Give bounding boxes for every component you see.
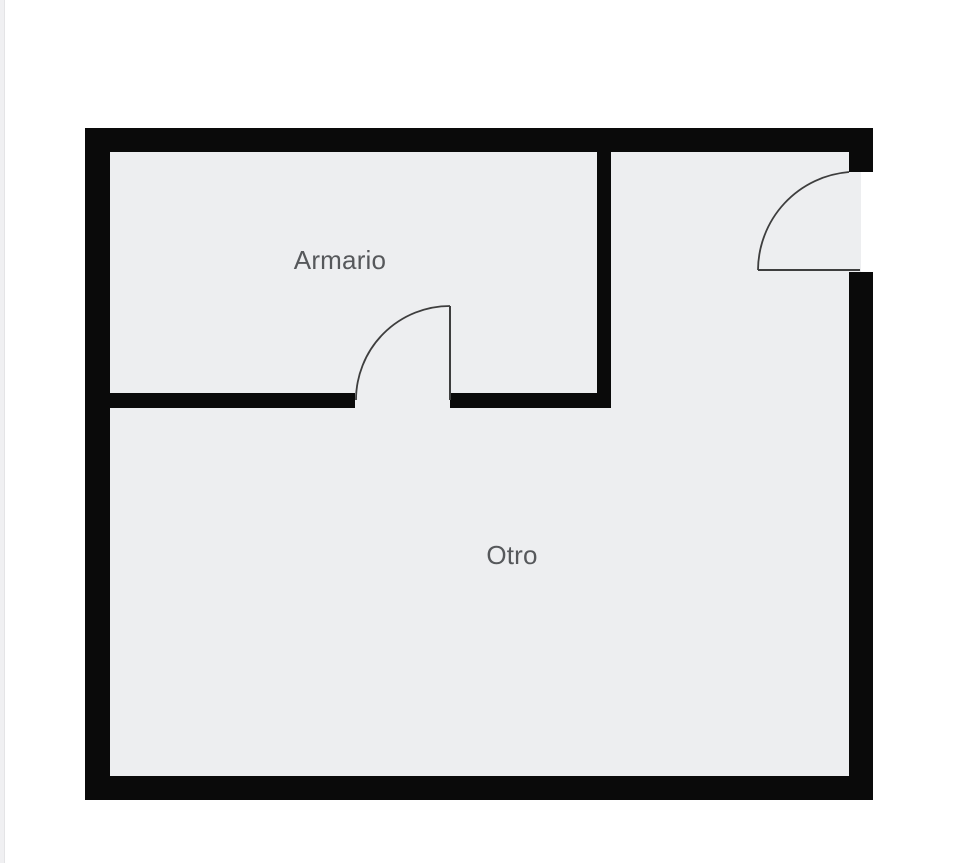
- floorplan-diagram: Armario Otro: [0, 0, 980, 863]
- room-label-otro: Otro: [486, 540, 537, 570]
- doorway-gap-exterior: [849, 172, 861, 272]
- wall-outer-left: [85, 128, 110, 800]
- wall-outer-top: [85, 128, 873, 152]
- doorway-gap-interior: [355, 393, 450, 409]
- wall-divider-left: [110, 393, 355, 408]
- wall-outer-right-lower: [849, 272, 873, 800]
- wall-outer-right-upper: [849, 128, 873, 172]
- wall-divider-right: [450, 393, 611, 408]
- room-label-armario: Armario: [294, 245, 386, 275]
- wall-interior-vertical: [597, 152, 611, 408]
- floorplan-page: Armario Otro: [0, 0, 980, 863]
- wall-outer-bottom: [85, 776, 873, 800]
